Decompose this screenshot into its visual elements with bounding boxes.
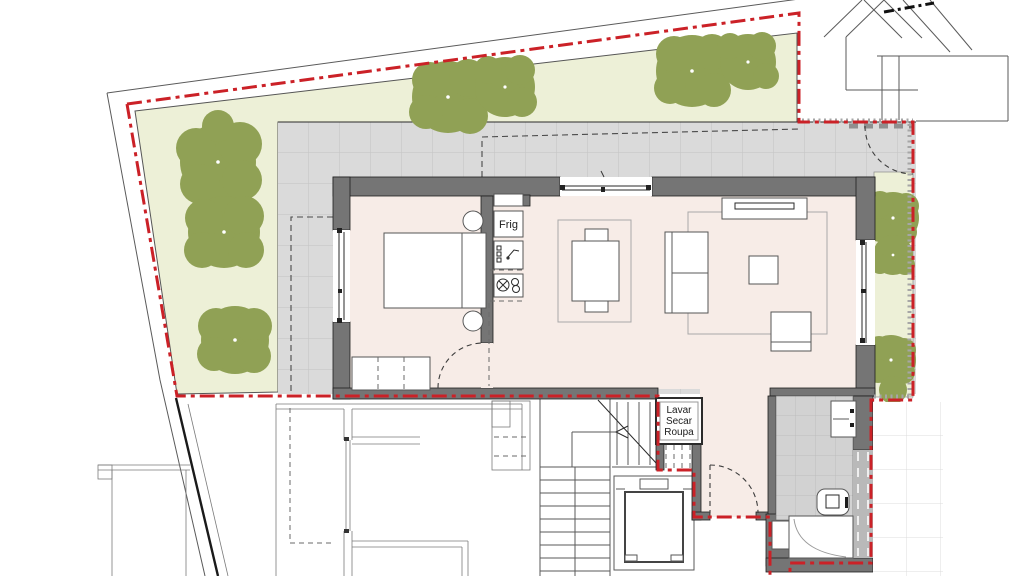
armchair (771, 312, 811, 351)
lower-floor-outline (98, 401, 530, 576)
fridge: Frig (494, 211, 523, 237)
bathroom-sink (831, 401, 856, 437)
road-edge-line-2 (188, 404, 228, 576)
bedroom-window (333, 228, 350, 323)
shower-niche (772, 521, 789, 549)
dining-window (560, 177, 652, 196)
bedroom-door-opening (481, 343, 493, 388)
fridge-label: Frig (499, 219, 518, 231)
floor-plan-canvas: Frig (0, 0, 1024, 576)
bed (384, 233, 486, 308)
living-window (856, 240, 875, 345)
stair-arrow-icon (616, 426, 628, 438)
nightstand (463, 311, 483, 331)
lower-floor-window (344, 437, 350, 533)
terrace-tiles (873, 402, 943, 576)
toilet (817, 489, 849, 515)
dining-table (572, 241, 619, 301)
kitchen-counter (494, 194, 523, 206)
lower-floor-terrace (98, 465, 190, 576)
kitchen-sink (494, 241, 523, 269)
hall-floor (700, 389, 770, 517)
laundry-vent-dashes (666, 445, 690, 468)
coffee-table (749, 256, 778, 284)
tv-bench (722, 198, 807, 219)
elevator (614, 476, 694, 570)
apartment: Frig (333, 171, 943, 576)
neighbor-building (824, 0, 1008, 121)
stove (494, 274, 523, 297)
laundry-label-line1: Lavar (666, 405, 692, 416)
lower-floor-duct (492, 401, 530, 470)
nightstand (463, 211, 483, 231)
wardrobe (352, 357, 430, 390)
sofa (665, 232, 708, 313)
laundry-label-line2: Secar (666, 416, 693, 427)
road-edge-line (176, 398, 218, 576)
tree-icon (197, 306, 272, 374)
laundry-label-line3: Roupa (664, 427, 694, 438)
tree-icon (184, 196, 264, 268)
